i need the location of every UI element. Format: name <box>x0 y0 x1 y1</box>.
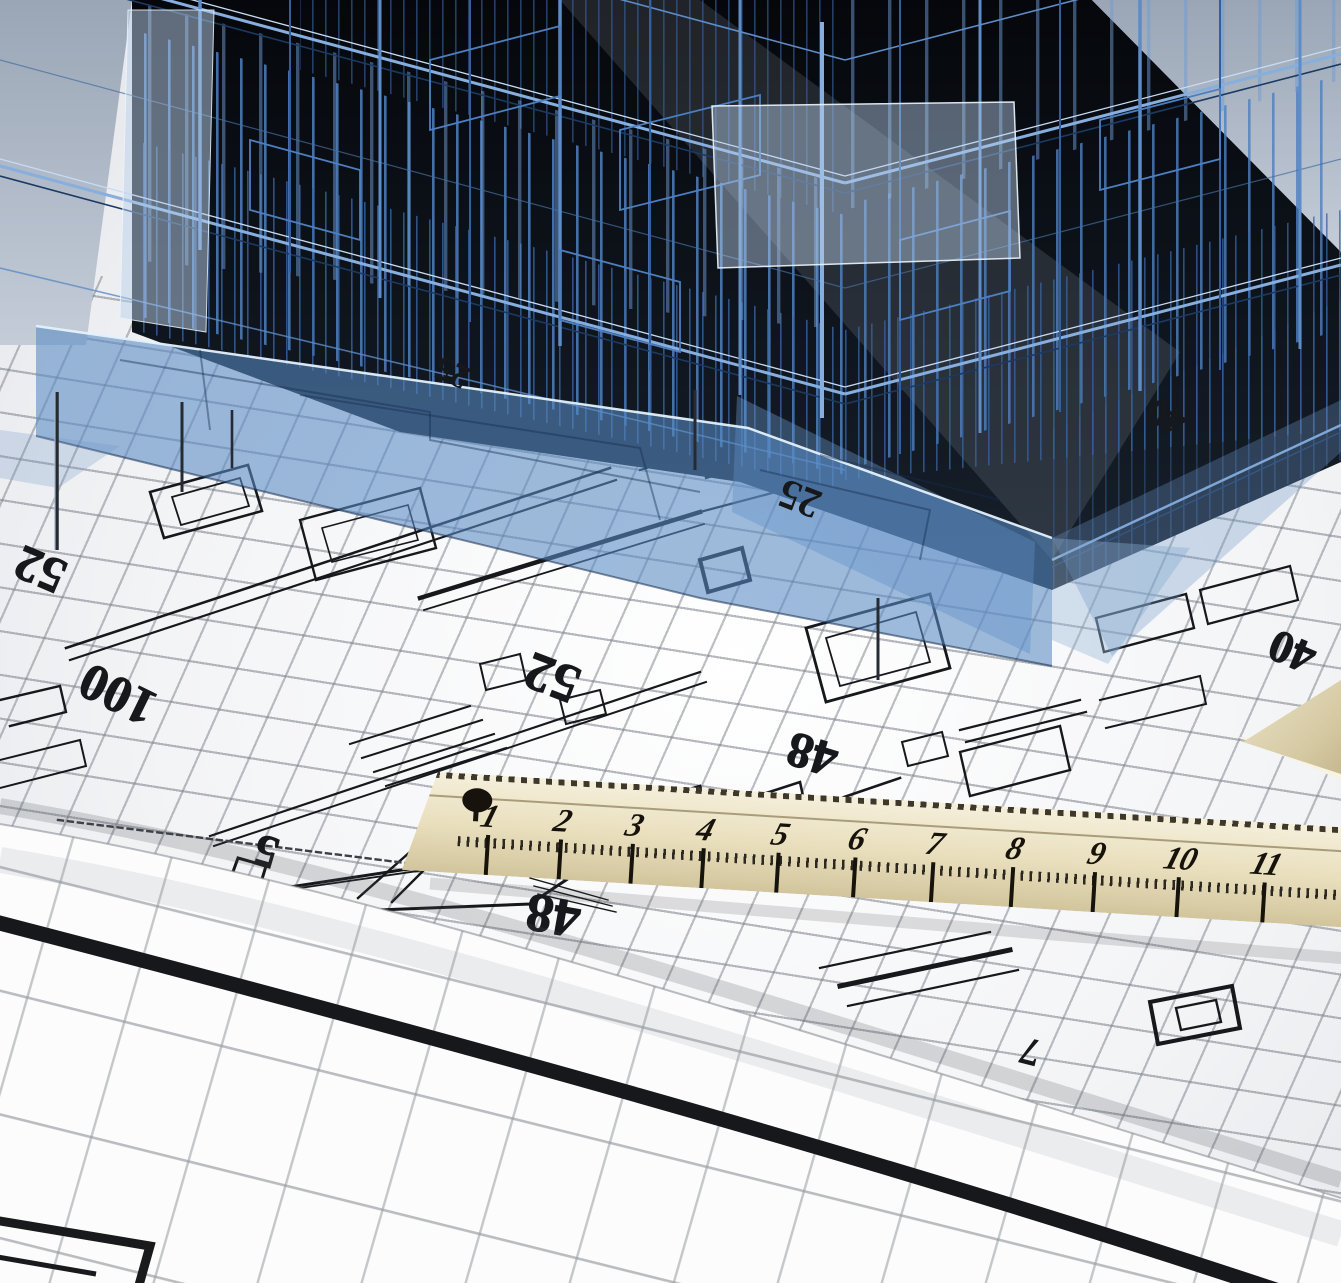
rolled-sheet-grid <box>0 824 1341 1283</box>
dimension-label-foreground: 7 <box>1015 1028 1045 1077</box>
rolled-sheet: 7 <box>0 0 1341 1283</box>
blueprint-scene: 52 100 52 48 40 5 48 <box>0 0 1341 1283</box>
